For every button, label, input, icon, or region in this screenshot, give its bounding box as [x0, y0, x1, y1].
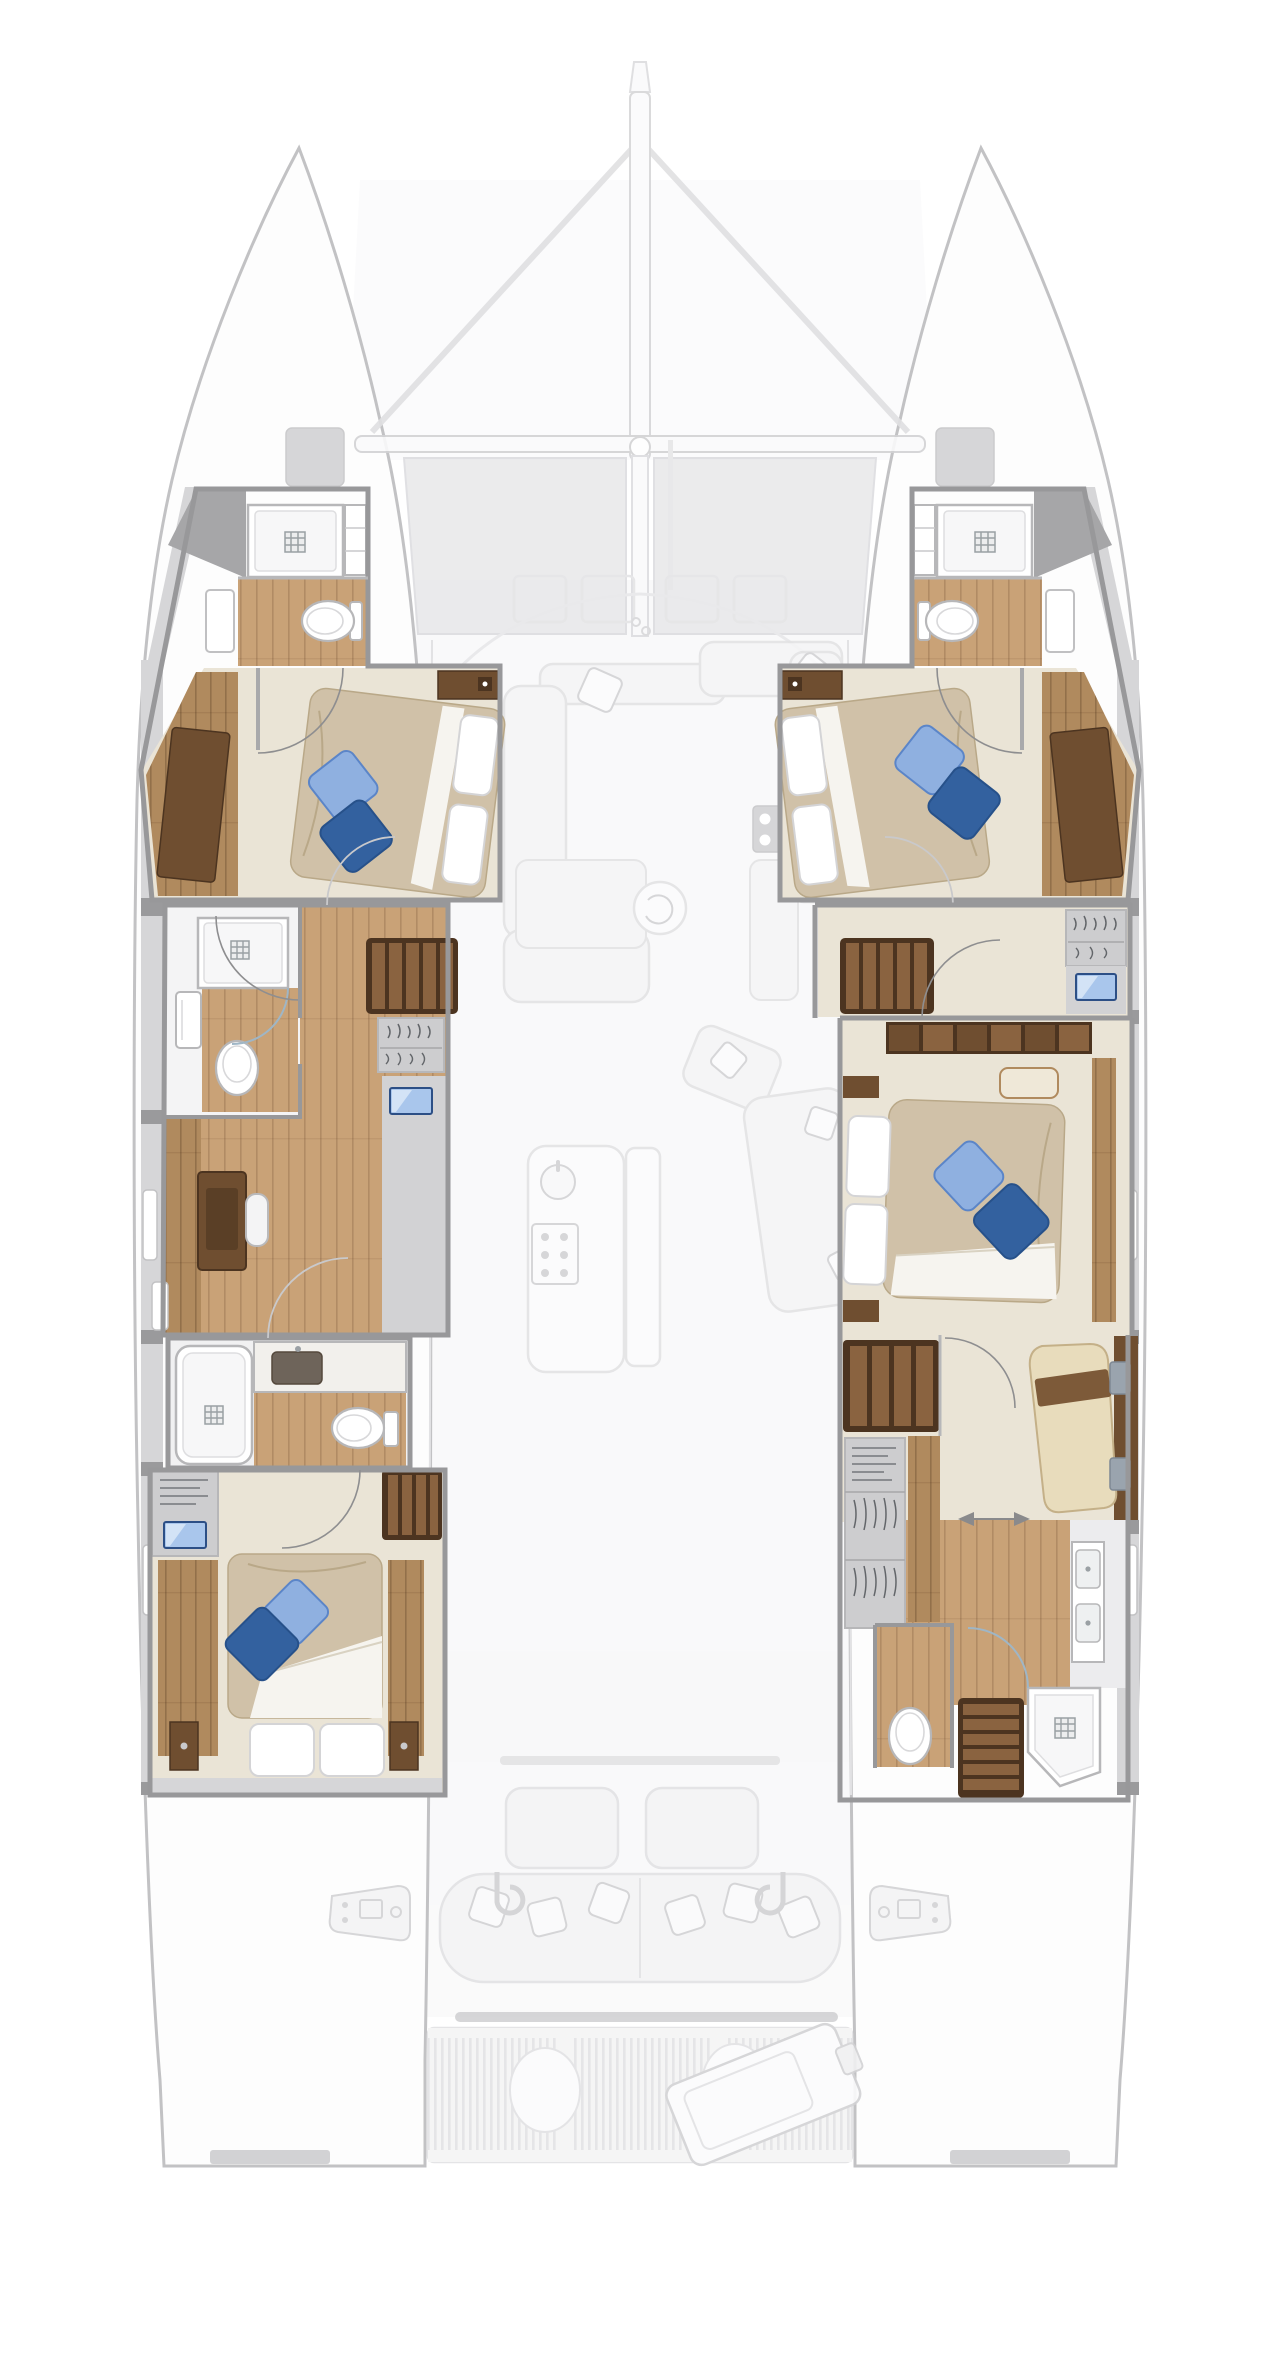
shower-forward-port: [248, 505, 343, 577]
white-pillow: [781, 714, 828, 796]
shower-cabinet: [914, 505, 935, 575]
cockpit-bench: [440, 1874, 840, 1982]
wardrobe-forward-stbd: [782, 671, 842, 699]
salon-aft-door-track: [500, 1756, 780, 1765]
cockpit-table-2: [646, 1788, 758, 1868]
tv-panel-port-aft: [152, 1470, 218, 1556]
deck-hatch-starboard: [936, 428, 994, 486]
master-cabin: [840, 1018, 1132, 1360]
white-pillow: [320, 1724, 384, 1776]
tv-starboard-landing: [1066, 966, 1126, 1014]
salon-low-table: [516, 860, 646, 948]
white-pillow: [791, 804, 838, 886]
bow-line: [668, 440, 673, 590]
aft-bulkhead-band: [152, 1778, 442, 1794]
port-aft-cabin: [150, 1470, 445, 1795]
master-wardrobe-row: [886, 1022, 1092, 1054]
sink-port-aft: [272, 1352, 322, 1384]
floor-plan-canvas: [0, 0, 1280, 2362]
desk-chair: [246, 1194, 268, 1246]
shower-cabinet: [345, 505, 366, 575]
chaise-longue: [1030, 1336, 1138, 1520]
bed-forward-port: [289, 687, 507, 899]
port-midship: [152, 837, 458, 1335]
shower-drain-icon: [205, 1406, 223, 1424]
cockpit-table-1: [506, 1788, 618, 1868]
deck-hatch-port: [286, 428, 344, 486]
toilet-mid-port: [216, 1041, 258, 1095]
port-transom-step: [210, 2150, 330, 2164]
closet-wood-divider: [908, 1436, 940, 1622]
wardrobe-forward-port: [438, 671, 498, 699]
master-nightstand-bottom: [843, 1300, 879, 1322]
white-pillow: [250, 1724, 314, 1776]
stbd-hanging-locker: [1066, 910, 1126, 966]
hull-window-port-1: [143, 1190, 157, 1260]
toilet-forward-port: [302, 601, 362, 641]
white-pillow: [452, 714, 499, 796]
winch-console-starboard: [870, 1886, 950, 1940]
stairs-starboard: [840, 938, 934, 1014]
starboard-aft-suite: [840, 1335, 1138, 1800]
stairs-stbd-aft: [958, 1698, 1024, 1798]
louver-cabinet-port-aft: [382, 1470, 442, 1540]
mast-foot: [630, 437, 650, 457]
starboard-transom-step: [950, 2150, 1070, 2164]
galley-island: [528, 1146, 660, 1372]
trampoline-starboard: [654, 458, 876, 634]
transom-beam: [455, 2012, 838, 2022]
toilet-port-aft: [332, 1408, 398, 1448]
hanging-closet-stbd: [845, 1438, 905, 1628]
white-pillow: [846, 1116, 891, 1197]
shower-drain-icon: [285, 532, 305, 552]
catamaran-floor-plan-svg: [0, 0, 1280, 2362]
stairs-port: [366, 938, 458, 1014]
master-nightstand-top: [843, 1076, 879, 1098]
master-wood-strip: [1092, 1058, 1116, 1322]
twin-sink-vanity: [1072, 1542, 1104, 1662]
toilet-forward-stbd: [918, 601, 978, 641]
master-bench: [1000, 1068, 1058, 1098]
vanity-port-aft: [254, 1342, 406, 1392]
swim-platform: [428, 2016, 875, 2168]
port-hanging-locker: [378, 1018, 444, 1072]
bowsprit-tip: [630, 62, 650, 92]
fore-stbd-niche: [1046, 590, 1074, 652]
fore-port-niche: [206, 590, 234, 652]
shower-drain-icon: [975, 532, 995, 552]
toilet-stbd-aft: [889, 1708, 931, 1764]
louver-dresser-stbd: [843, 1340, 939, 1432]
white-pillow: [441, 804, 488, 886]
bowsprit: [630, 92, 650, 460]
shower-drain-icon: [231, 941, 249, 959]
toilet-room-stbd: [875, 1625, 952, 1768]
washbasin-mid-port: [176, 992, 201, 1048]
engine-hatch-port: [510, 2048, 580, 2132]
bathtub-port: [176, 1346, 252, 1464]
winch-console-port: [330, 1886, 410, 1940]
salon-round-table: [634, 882, 686, 934]
port-mid-bathroom: [165, 907, 300, 1115]
shower-forward-stbd: [937, 505, 1032, 577]
white-pillow: [843, 1204, 888, 1285]
shower-drain-icon: [1055, 1718, 1075, 1738]
tv-port-corridor: [390, 1088, 432, 1114]
